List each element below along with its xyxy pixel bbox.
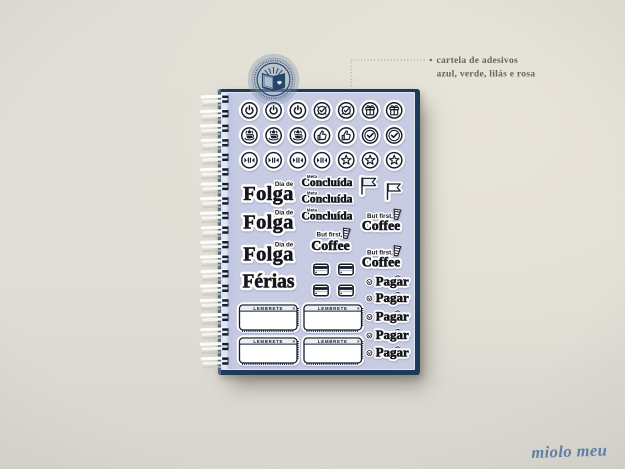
svg-text:azul, verde, lilás e rosa: azul, verde, lilás e rosa bbox=[437, 69, 536, 80]
svg-text:LEMBRETE: LEMBRETE bbox=[253, 306, 283, 311]
svg-text:Férias: Férias bbox=[243, 272, 295, 293]
svg-text:×: × bbox=[293, 339, 296, 344]
svg-text:Pagar: Pagar bbox=[376, 344, 409, 359]
svg-text:But first,: But first, bbox=[317, 232, 343, 239]
svg-text:Coffee: Coffee bbox=[311, 239, 350, 254]
svg-text:Coffee: Coffee bbox=[362, 219, 401, 234]
svg-text:Pagar: Pagar bbox=[376, 273, 409, 288]
svg-text:Pagar: Pagar bbox=[376, 308, 409, 323]
svg-text:Meta: Meta bbox=[307, 208, 318, 213]
svg-text:×: × bbox=[293, 306, 296, 311]
svg-text:×: × bbox=[357, 339, 360, 344]
svg-text:Meta: Meta bbox=[307, 191, 318, 196]
svg-text:LEMBRETE: LEMBRETE bbox=[253, 339, 283, 344]
svg-text:LEMBRETE: LEMBRETE bbox=[318, 306, 348, 311]
svg-text:Pagar: Pagar bbox=[376, 327, 409, 342]
svg-text:Dia de: Dia de bbox=[275, 210, 294, 217]
svg-text:×: × bbox=[357, 306, 360, 311]
svg-text:LEMBRETE: LEMBRETE bbox=[318, 339, 348, 344]
svg-text:Meta: Meta bbox=[307, 174, 318, 179]
svg-text:Dia de: Dia de bbox=[275, 242, 294, 249]
svg-text:Coffee: Coffee bbox=[362, 255, 401, 270]
svg-text:Pagar: Pagar bbox=[376, 290, 409, 305]
svg-text:cartela de adesivos: cartela de adesivos bbox=[437, 55, 519, 66]
svg-text:Dia de: Dia de bbox=[275, 181, 294, 188]
svg-text:miolo meu: miolo meu bbox=[531, 440, 608, 462]
